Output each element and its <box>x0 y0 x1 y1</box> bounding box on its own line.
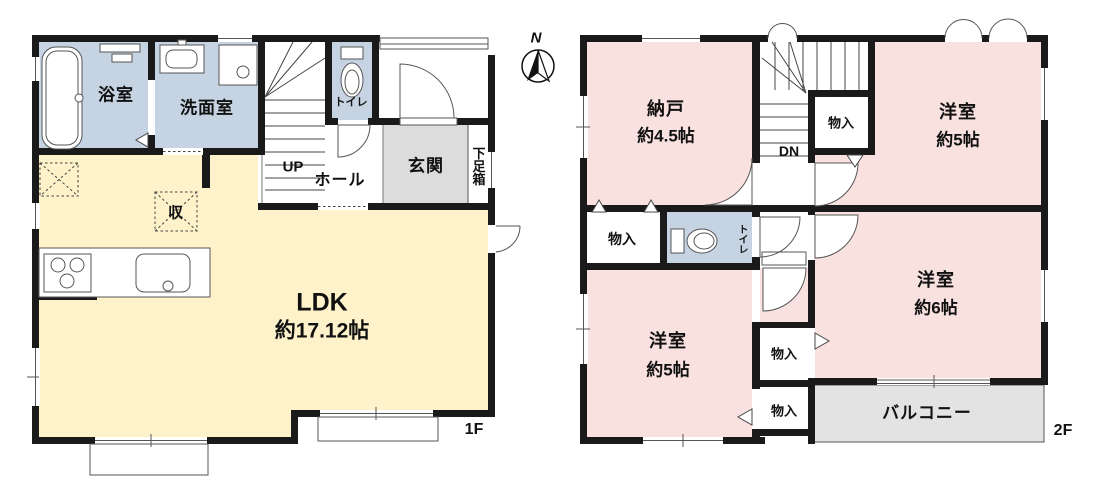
kitchen-counter <box>39 248 210 297</box>
western-ne-fill <box>875 42 1044 212</box>
label-shoe-box: 下足箱 <box>472 147 485 186</box>
ldk-side-door-swing <box>494 226 520 252</box>
label-balcony: バルコニー <box>882 405 972 422</box>
entrance-door-swing <box>400 64 454 118</box>
label-floor1: 1F <box>465 422 484 438</box>
label-compass-north: N <box>531 31 542 46</box>
label-storage-shu: 収 <box>168 206 184 221</box>
label-western-ne: 洋室 <box>939 103 977 121</box>
label-storage-room: 納戸 <box>647 100 685 118</box>
label-stairs-dn: DN <box>779 144 799 158</box>
label-hall: ホール <box>314 173 365 189</box>
label-closet-b2: 物入 <box>771 405 797 418</box>
label-western-ne-area: 約5帖 <box>936 132 979 149</box>
casement-window-arc <box>945 20 982 39</box>
compass-icon <box>522 50 554 82</box>
label-western-se: 洋室 <box>917 271 955 289</box>
entrance-threshold <box>400 118 457 125</box>
bath-counter <box>100 44 140 52</box>
floor2-fixtures <box>671 229 717 253</box>
label-floor2: 2F <box>1054 423 1073 439</box>
toilet1f-bowl <box>341 63 363 97</box>
label-storage-room-area: 約4.5帖 <box>637 128 695 145</box>
label-entrance: 玄関 <box>408 158 444 175</box>
label-stairs-up: UP <box>283 160 304 175</box>
floorplan-canvas: 浴室 洗面室 トイレ UP ホール 玄関 下足箱 収 LDK 約17.12帖 1… <box>0 0 1100 482</box>
toilet1f-door-swing <box>338 125 370 157</box>
label-toilet-1f: トイレ <box>335 98 368 109</box>
bathroom-door-gap <box>148 80 155 135</box>
label-ldk: LDK <box>296 291 347 316</box>
label-bathroom: 浴室 <box>98 87 134 104</box>
toilet2f-bowl <box>687 229 717 253</box>
toilet2f-tank <box>671 229 684 253</box>
toilet2f-door-swing <box>760 217 800 257</box>
terrace-south-east <box>318 417 438 441</box>
label-western-se-area: 約6帖 <box>914 300 957 317</box>
label-closet-mid: 物入 <box>608 232 636 246</box>
label-washroom: 洗面室 <box>180 100 234 117</box>
label-ldk-area: 約17.12帖 <box>275 321 370 342</box>
toilet1f-tank <box>341 47 363 59</box>
casement-window-arc <box>989 19 1027 38</box>
label-closet-b1: 物入 <box>771 348 797 361</box>
label-closet-top: 物入 <box>828 117 854 130</box>
label-western-sw-area: 約5帖 <box>646 362 689 379</box>
label-toilet-2f: トイレ <box>736 224 746 254</box>
washing-machine <box>219 45 257 85</box>
label-western-sw: 洋室 <box>649 332 687 350</box>
casement-window-arc <box>768 24 797 39</box>
terrace-south-west <box>90 444 208 475</box>
